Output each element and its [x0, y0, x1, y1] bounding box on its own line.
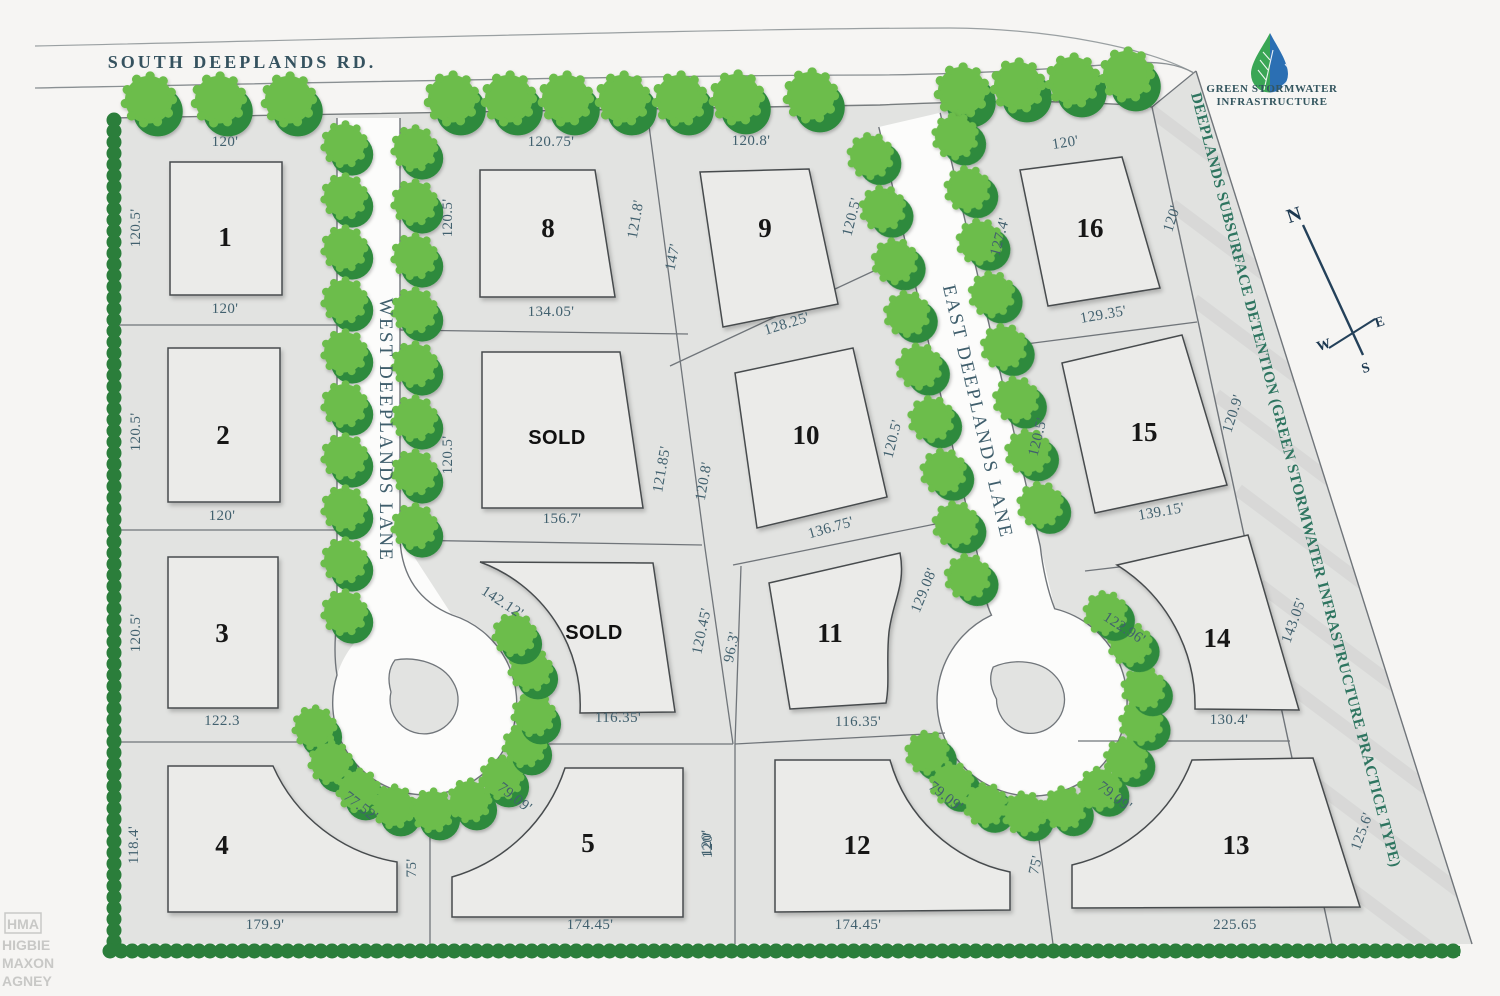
- lot-2-dim-left: 120.5': [128, 413, 144, 452]
- lot-8-number: 8: [541, 213, 555, 243]
- lot-6-sold-label: SOLD: [565, 622, 623, 644]
- west-lane-label: WEST DEEPLANDS LANE: [375, 298, 396, 562]
- lot-8-dim-left: 120.5': [440, 199, 456, 238]
- compass-west-label: W: [1315, 336, 1333, 355]
- compass-north-label: N: [1284, 202, 1305, 228]
- lot-11-dim-bottom: 116.35': [835, 714, 881, 730]
- compass-rose: N E W S: [1284, 202, 1387, 377]
- lot-10-number: 10: [793, 420, 820, 450]
- lot-14-number: 14: [1204, 623, 1231, 653]
- compass-crossbar: [1329, 319, 1375, 348]
- lot-8-dim-top: 120.75': [528, 134, 575, 150]
- compass-east-label: E: [1373, 314, 1387, 331]
- lot-4-dim-bottom: 179.9': [246, 917, 285, 933]
- lot-13-dim-bottom: 225.65: [1213, 917, 1257, 933]
- lot-4-dim-left: 118.4': [126, 826, 142, 864]
- lot-5-dim-bottom: 174.45': [567, 917, 614, 933]
- lot-14-dim-bottom: 130.4': [1210, 712, 1249, 728]
- lot-3-dim-bottom: 122.3: [204, 713, 240, 729]
- lot-2-dim-bottom: 120': [209, 508, 236, 524]
- lot-1-dim-top: 120': [212, 134, 239, 150]
- lot-1-number: 1: [218, 222, 232, 252]
- lot-2-number: 2: [216, 420, 230, 450]
- lot-9-number: 9: [758, 213, 772, 243]
- lot-16-number: 16: [1077, 213, 1104, 243]
- lot-3-dim-left: 120.5': [128, 614, 144, 653]
- agency-watermark: HMA HIGBIE MAXON AGNEY: [2, 913, 54, 989]
- logo-text-line1: GREEN STORMWATER: [1206, 83, 1338, 95]
- lot-11-number: 11: [817, 618, 843, 648]
- plat-map-canvas: SOUTH DEEPLANDS RD. WEST DEEPLANDS LANE …: [0, 0, 1500, 996]
- watermark-line-3: AGNEY: [2, 973, 52, 989]
- green-stormwater-logo: GREEN STORMWATER INFRASTRUCTURE: [1206, 28, 1338, 108]
- lot-4-dim-side: 75': [404, 859, 420, 878]
- lot-5-number: 5: [581, 828, 595, 858]
- logo-text-line2: INFRASTRUCTURE: [1216, 96, 1327, 108]
- lot-6-dim-bottom: 116.35': [595, 710, 641, 726]
- lot-1-dim-bottom: 120': [212, 301, 239, 317]
- lot-7-dim-left: 120.5': [440, 436, 456, 475]
- lot-1-dim-left: 120.5': [128, 209, 144, 248]
- lot-7-sold-label: SOLD: [528, 427, 586, 449]
- compass-south-label: S: [1360, 360, 1372, 377]
- lot-9-dim-top: 120.8': [732, 133, 771, 149]
- lot-3-number: 3: [215, 618, 229, 648]
- lot-7-dim-bottom: 156.7': [543, 511, 582, 527]
- lot-12-dim-left: 120': [700, 832, 716, 859]
- watermark-line-2: MAXON: [2, 955, 54, 971]
- lot-8-dim-bottom: 134.05': [528, 304, 575, 320]
- watermark-monogram: HMA: [7, 916, 39, 932]
- compass-needle: [1303, 225, 1363, 355]
- lot-12-dim-bottom: 174.45': [835, 917, 882, 933]
- watermark-line-1: HIGBIE: [2, 937, 50, 953]
- plat-map-page: SOUTH DEEPLANDS RD. WEST DEEPLANDS LANE …: [0, 0, 1500, 996]
- lot-4-number: 4: [215, 830, 229, 860]
- lot-12-number: 12: [844, 830, 871, 860]
- tree-icon: [1103, 51, 1161, 111]
- lot-13-number: 13: [1223, 830, 1250, 860]
- lot-15-number: 15: [1131, 417, 1158, 447]
- road-name-label: SOUTH DEEPLANDS RD.: [108, 52, 377, 72]
